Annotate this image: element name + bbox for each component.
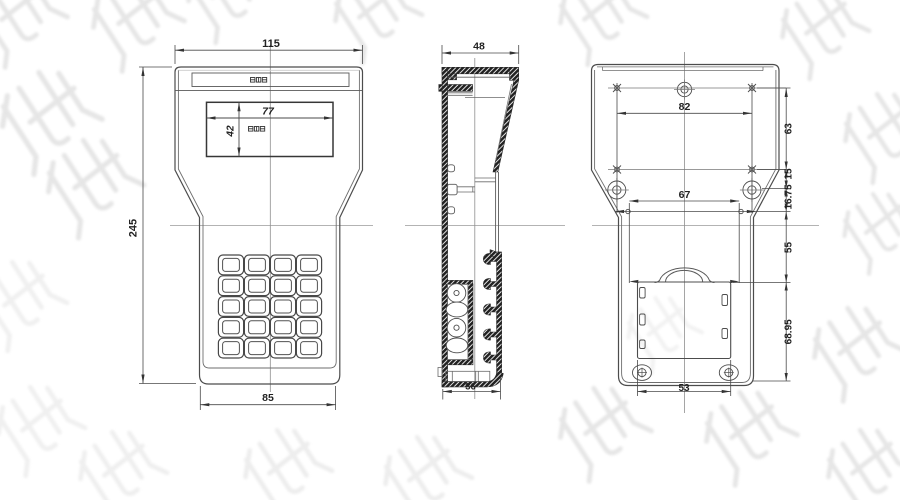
svg-text:63: 63 bbox=[784, 123, 795, 135]
svg-text:42: 42 bbox=[226, 125, 237, 138]
svg-text:16.75: 16.75 bbox=[784, 184, 795, 209]
svg-text:53: 53 bbox=[678, 383, 690, 394]
svg-text:85: 85 bbox=[262, 392, 274, 404]
svg-text:68.95: 68.95 bbox=[784, 319, 795, 344]
svg-text:48: 48 bbox=[473, 41, 485, 53]
svg-text:36: 36 bbox=[465, 382, 476, 393]
svg-text:115: 115 bbox=[262, 38, 280, 50]
svg-text:67: 67 bbox=[679, 189, 691, 201]
svg-text:245: 245 bbox=[128, 219, 140, 237]
svg-text:77: 77 bbox=[262, 106, 275, 118]
svg-text:82: 82 bbox=[679, 101, 691, 113]
svg-text:15: 15 bbox=[784, 168, 795, 180]
svg-text:55: 55 bbox=[784, 242, 795, 254]
